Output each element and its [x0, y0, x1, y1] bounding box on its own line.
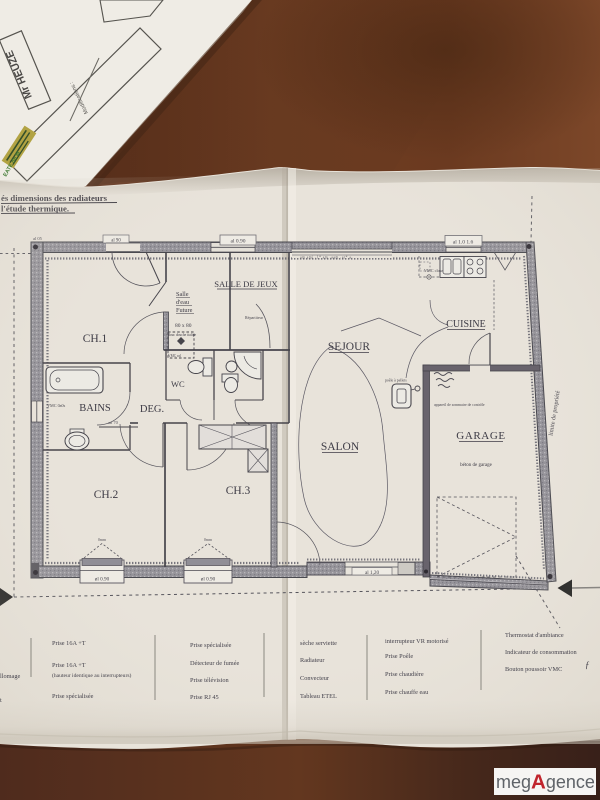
svg-text:Indicateur de consommation: Indicateur de consommation	[505, 649, 578, 656]
svg-text:megAgence: megAgence	[496, 771, 595, 794]
svg-text:Prise RJ 45: Prise RJ 45	[190, 694, 219, 701]
svg-text:Radiateur: Radiateur	[300, 657, 325, 664]
svg-text:ƒ: ƒ	[585, 660, 590, 670]
svg-text:interrupteur VR motorisé: interrupteur VR motorisé	[385, 638, 449, 645]
svg-text:Prise spécialisée: Prise spécialisée	[190, 642, 232, 649]
svg-text:llomage: llomage	[0, 673, 20, 680]
svg-text:Prise 16A +T: Prise 16A +T	[52, 662, 86, 669]
svg-text:Prise Poêle: Prise Poêle	[385, 653, 413, 660]
svg-text:Prise spécialisée: Prise spécialisée	[52, 693, 94, 700]
svg-text:Détecteur de fumée: Détecteur de fumée	[190, 660, 240, 667]
svg-text:Convecteur: Convecteur	[300, 675, 330, 682]
svg-text:t: t	[0, 697, 2, 704]
svg-text:Thermostat d'ambiance: Thermostat d'ambiance	[505, 632, 564, 639]
svg-text:Prise 16A +T: Prise 16A +T	[52, 640, 86, 647]
svg-text:Prise chauffe eau: Prise chauffe eau	[385, 689, 429, 696]
svg-text:sèche serviette: sèche serviette	[300, 640, 337, 647]
svg-text:Tableau ETEL: Tableau ETEL	[300, 693, 337, 700]
svg-text:Bouton poussoir VMC: Bouton poussoir VMC	[505, 666, 562, 673]
svg-text:Prise télévision: Prise télévision	[190, 677, 230, 684]
svg-text:(hauteur identique au interrup: (hauteur identique au interrupteurs)	[52, 672, 132, 679]
svg-text:Prise chaudière: Prise chaudière	[385, 671, 424, 678]
